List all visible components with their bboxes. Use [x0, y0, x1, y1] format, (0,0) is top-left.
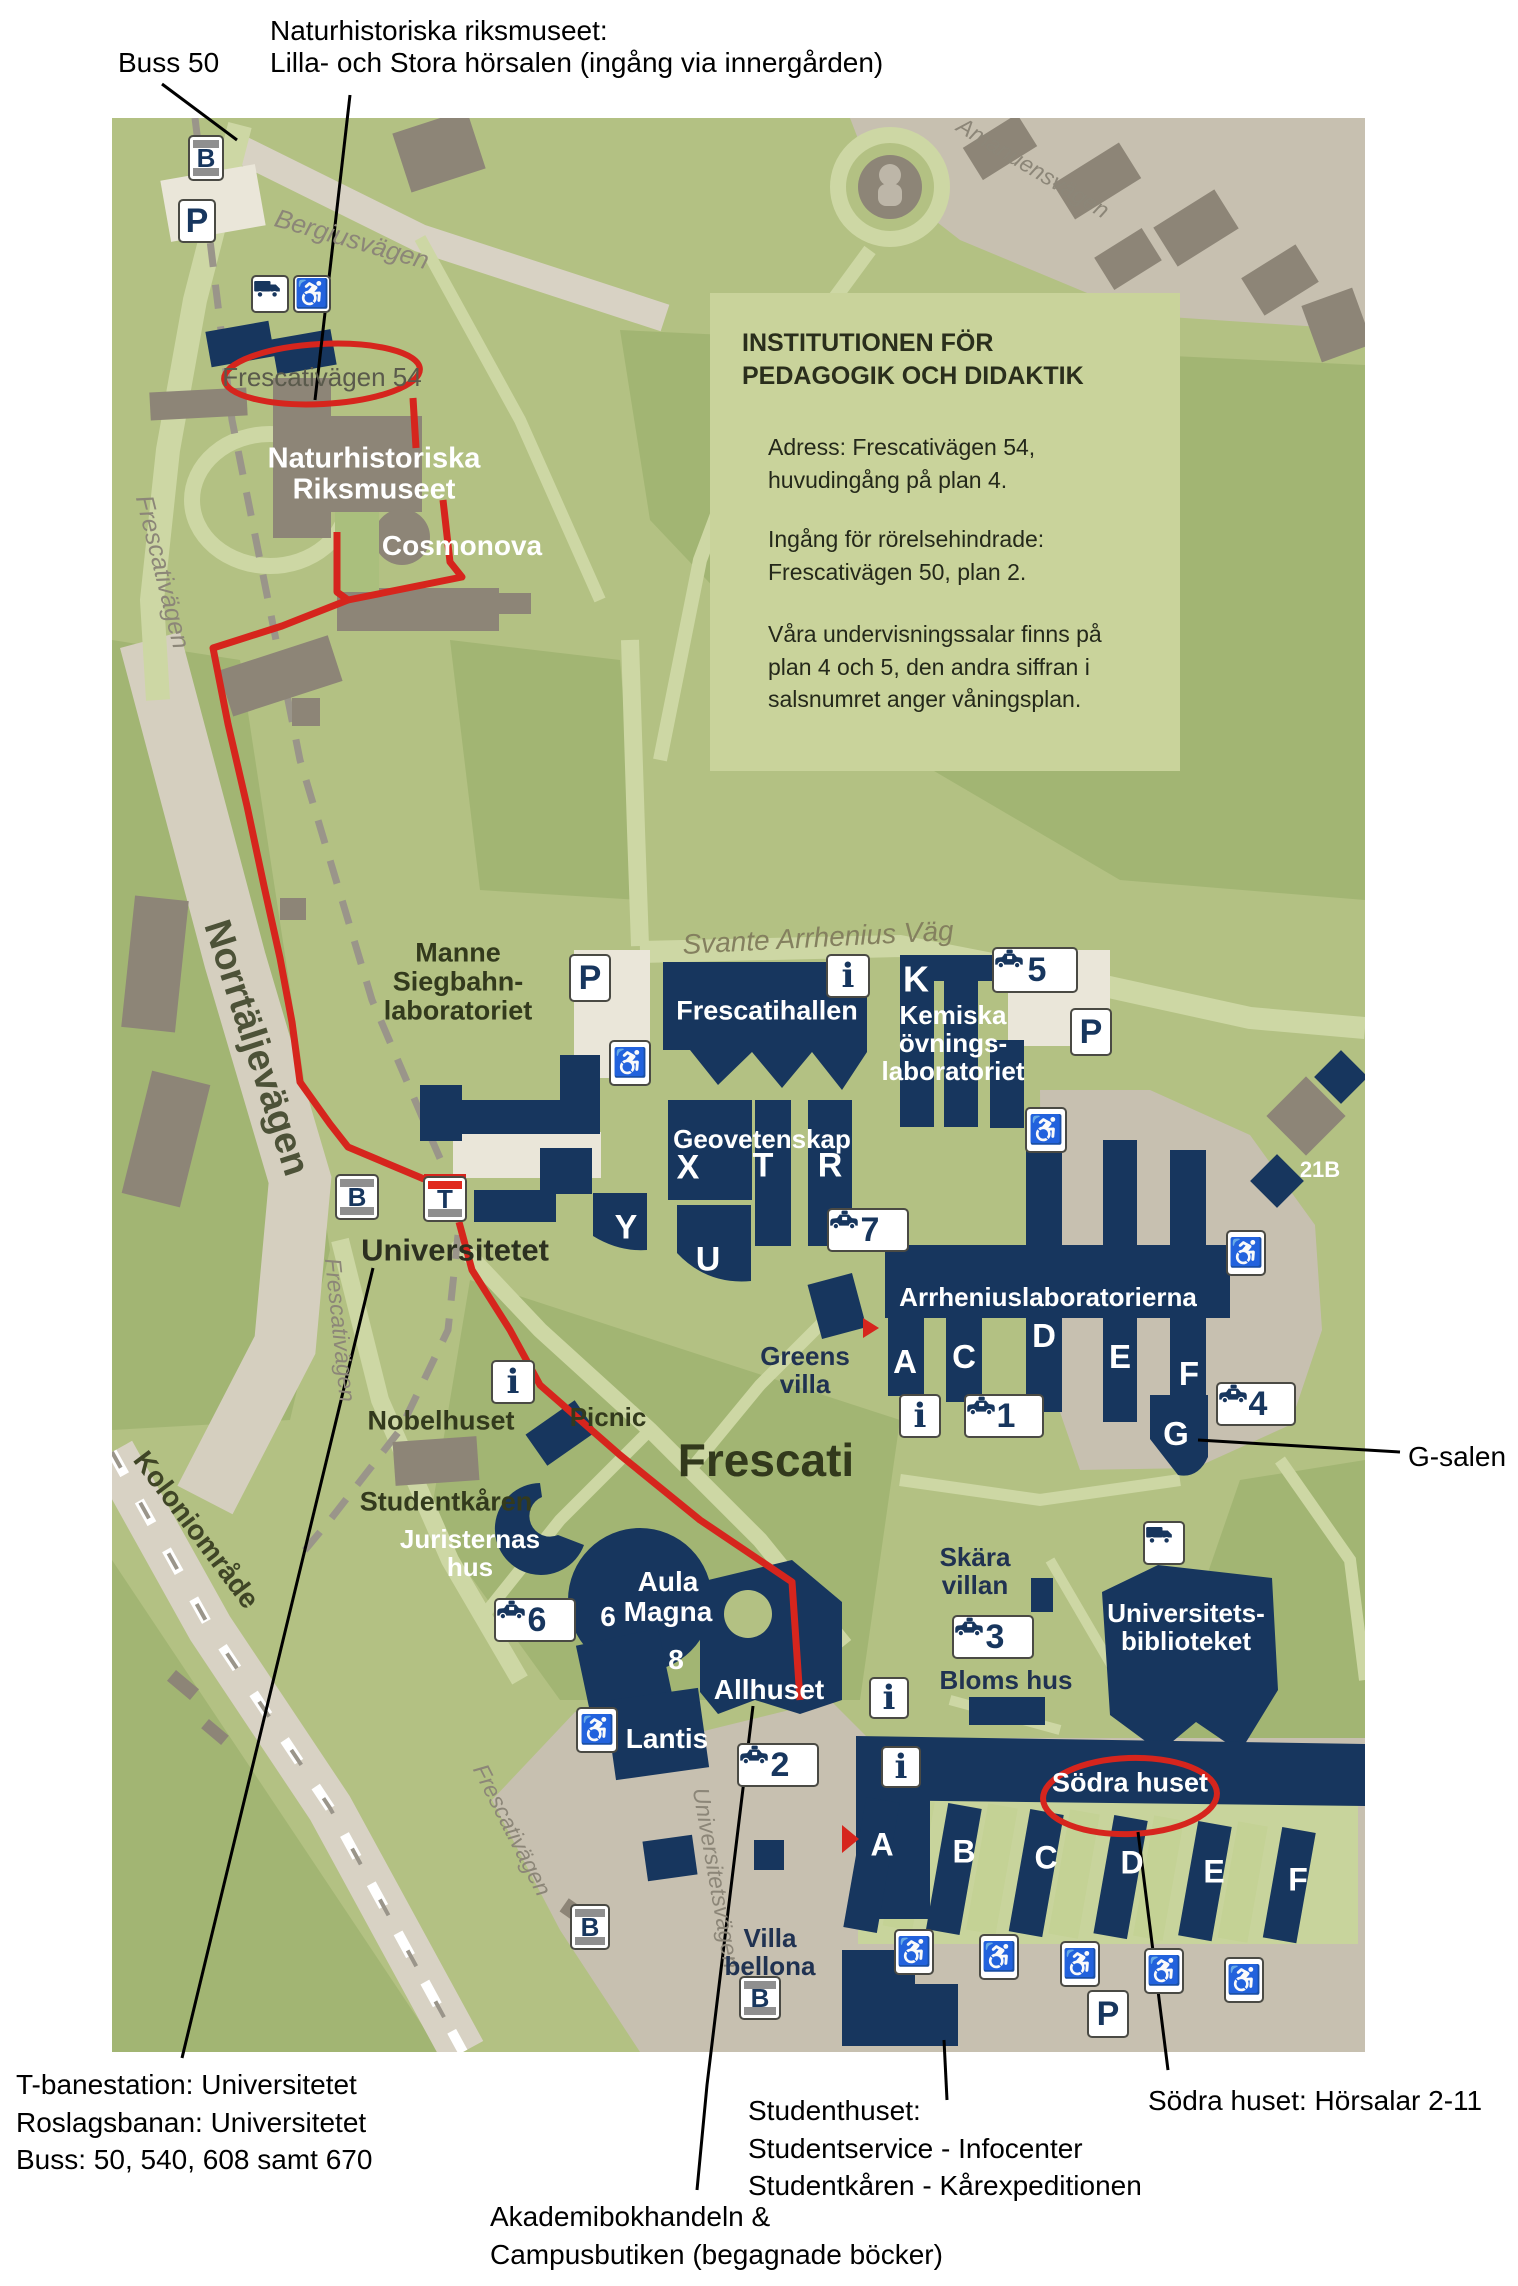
infobox-classrooms: Våra undervisningssalar finns på plan 4 … — [768, 618, 1102, 716]
wheelchair-icon: ♿ — [1025, 1107, 1067, 1153]
taxi-icon: 4 — [1216, 1382, 1296, 1426]
taxi-icon: 5 — [992, 947, 1078, 993]
taxi-zone-number: 2 — [771, 1746, 790, 1785]
wheelchair-glyph: ♿ — [1227, 1966, 1262, 1994]
wheelchair-icon: ♿ — [576, 1707, 618, 1753]
wheelchair-glyph: ♿ — [580, 1716, 615, 1744]
annotation-riksmuseet-line2: Lilla- och Stora hörsalen (ingång via in… — [270, 44, 883, 82]
taxi-icon: 1 — [964, 1394, 1044, 1438]
annotation-g-salen: G-salen — [1408, 1438, 1506, 1476]
wheelchair-icon: ♿ — [1060, 1941, 1100, 1987]
info-letter: i — [507, 1365, 520, 1399]
wheelchair-glyph: ♿ — [613, 1049, 648, 1077]
taxi-zone-number: 5 — [1028, 951, 1047, 990]
taxi-zone-number: 7 — [861, 1211, 880, 1250]
info-letter: i — [842, 959, 855, 993]
annotation-sodra-huset: Södra huset: Hörsalar 2-11 — [1148, 2082, 1482, 2120]
infobox-title: INSTITUTIONEN FÖR PEDAGOGIK OCH DIDAKTIK — [742, 327, 1084, 392]
taxi-icon: 6 — [494, 1598, 576, 1642]
taxi-zone-number: 6 — [528, 1601, 547, 1640]
parking-icon: P — [1087, 1990, 1129, 2038]
campus-map-page: { "annotations": { "buss50": "Buss 50", … — [0, 0, 1518, 2286]
bus-stop-icon: B — [335, 1174, 379, 1220]
taxi-zone-number: 1 — [997, 1397, 1016, 1436]
wheelchair-icon: ♿ — [609, 1040, 651, 1086]
parking-letter: P — [1080, 1015, 1103, 1049]
truck-icon — [1143, 1521, 1185, 1565]
wheelchair-icon: ♿ — [1144, 1948, 1184, 1994]
parking-icon: P — [178, 199, 216, 243]
wheelchair-glyph: ♿ — [1147, 1957, 1182, 1985]
parking-icon: P — [1070, 1008, 1112, 1056]
info-letter: i — [883, 1681, 896, 1715]
info-icon: i — [899, 1394, 941, 1438]
parking-letter: P — [1097, 1997, 1120, 2031]
parking-letter: P — [579, 961, 602, 995]
infobox-address: Adress: Frescativägen 54, huvudingång på… — [768, 431, 1035, 496]
wheelchair-glyph: ♿ — [295, 280, 330, 308]
annotation-transit: T-banestation: UniversitetetRoslagsbanan… — [16, 2066, 372, 2179]
wheelchair-glyph: ♿ — [1229, 1239, 1264, 1267]
taxi-zone-number: 4 — [1249, 1385, 1268, 1424]
infobox-pedagogik: INSTITUTIONEN FÖR PEDAGOGIK OCH DIDAKTIK… — [710, 293, 1180, 771]
info-icon: i — [491, 1360, 535, 1404]
wheelchair-glyph: ♿ — [1063, 1950, 1098, 1978]
info-icon: i — [881, 1746, 921, 1788]
annotation-buss-50: Buss 50 — [118, 44, 219, 82]
wheelchair-icon: ♿ — [979, 1934, 1019, 1980]
bus-stop-icon: B — [739, 1976, 781, 2020]
wheelchair-glyph: ♿ — [982, 1943, 1017, 1971]
truck-icon — [251, 275, 289, 313]
bus-stop-icon: B — [570, 1904, 610, 1950]
annotation-bookstore: Akademibokhandeln &Campusbutiken (begagn… — [490, 2198, 943, 2273]
wheelchair-icon: ♿ — [894, 1929, 934, 1975]
wheelchair-icon: ♿ — [1224, 1957, 1264, 2003]
info-letter: i — [895, 1750, 908, 1784]
taxi-icon: 7 — [827, 1208, 909, 1252]
tbana-icon: T — [423, 1176, 467, 1222]
info-icon: i — [826, 954, 870, 998]
taxi-icon: 3 — [952, 1615, 1034, 1659]
wheelchair-glyph: ♿ — [897, 1938, 932, 1966]
wheelchair-icon: ♿ — [293, 275, 331, 313]
infobox-accessible-entrance: Ingång för rörelsehindrade: Frescativäge… — [768, 523, 1044, 588]
parking-letter: P — [186, 204, 209, 238]
info-icon: i — [869, 1677, 909, 1719]
parking-icon: P — [569, 954, 611, 1002]
info-letter: i — [914, 1399, 927, 1433]
taxi-zone-number: 3 — [986, 1618, 1005, 1657]
wheelchair-glyph: ♿ — [1029, 1116, 1064, 1144]
wheelchair-icon: ♿ — [1226, 1230, 1266, 1276]
annotation-studenthuset: Studenthuset:Studentservice - Infocenter… — [748, 2092, 1142, 2205]
bus-stop-icon: B — [188, 135, 224, 181]
taxi-icon: 2 — [737, 1743, 819, 1787]
